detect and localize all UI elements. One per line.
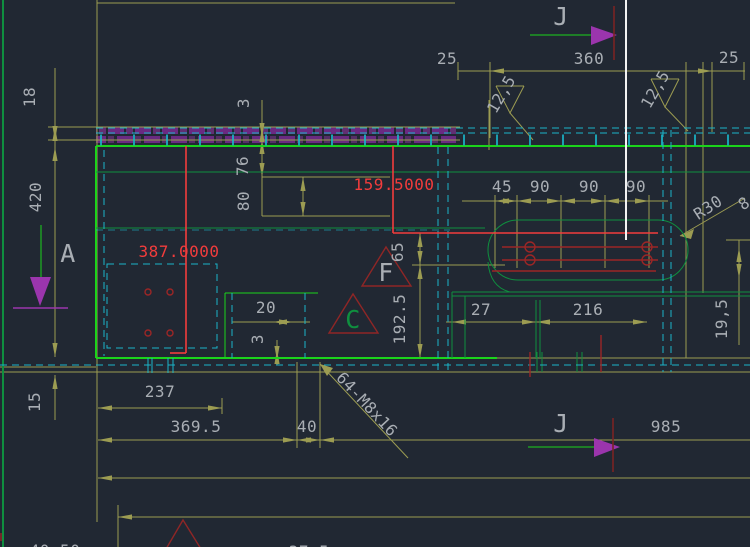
dim-20: 20 [256, 298, 276, 317]
dim-369-5: 369.5 [171, 417, 222, 436]
slot-holes [1, 242, 658, 541]
dim-3-pocket: 3 [248, 334, 267, 344]
dim-15: 15 [25, 392, 44, 412]
dim-40: 40 [297, 417, 317, 436]
roughness-value-left: 12,5 [483, 72, 520, 117]
part-outline [3, 0, 750, 547]
dim-40-50: 40.50 [30, 541, 81, 547]
thread-note: 64-M8x16 [332, 368, 401, 440]
dimension-lines [0, 0, 750, 547]
label-j-top: J [553, 2, 569, 31]
dim-65: 65 [388, 242, 407, 262]
dim-216: 216 [573, 300, 603, 319]
dim-45: 45 [492, 177, 512, 196]
dimension-texts: J J A F C 25 360 25 12,5 12,5 18 420 15 … [20, 2, 750, 547]
cad-drawing-canvas[interactable]: J J A F C 25 360 25 12,5 12,5 18 420 15 … [0, 0, 750, 547]
cad-drawing: J J A F C 25 360 25 12,5 12,5 18 420 15 … [0, 0, 750, 547]
label-a: A [60, 239, 76, 268]
dim-27: 27 [471, 300, 491, 319]
label-c: C [345, 305, 361, 334]
centerlines [0, 128, 750, 373]
dim-r30: R30 [690, 191, 726, 223]
dim-25-left: 25 [437, 49, 457, 68]
pocket-holes [145, 289, 173, 336]
dim-90a: 90 [530, 177, 550, 196]
dim-985: 985 [651, 417, 681, 436]
dim-360: 360 [574, 49, 604, 68]
dim-25-right: 25 [719, 48, 739, 67]
dim-237: 237 [145, 382, 175, 401]
dim-37-5: 37.5 [289, 542, 330, 547]
dim-76: 76 [233, 156, 252, 176]
roughness-value-right: 12,5 [637, 67, 674, 112]
dim-90b: 90 [579, 177, 599, 196]
dim-420: 420 [26, 182, 45, 212]
dim-19-5: 19,5 [712, 299, 731, 340]
detail-triangle-bottom [166, 520, 201, 547]
section-marker-j-bottom [528, 418, 620, 472]
label-j-bottom: J [553, 409, 569, 438]
edge-glyph: 8 [735, 193, 750, 214]
dim-90c: 90 [626, 177, 646, 196]
dim-159-5: 159.5000 [353, 175, 434, 194]
dim-80: 80 [234, 191, 253, 211]
dim-192-5: 192.5 [390, 294, 409, 345]
dim-3-top: 3 [234, 98, 253, 108]
dim-387: 387.0000 [138, 242, 219, 261]
dim-18: 18 [20, 87, 39, 107]
